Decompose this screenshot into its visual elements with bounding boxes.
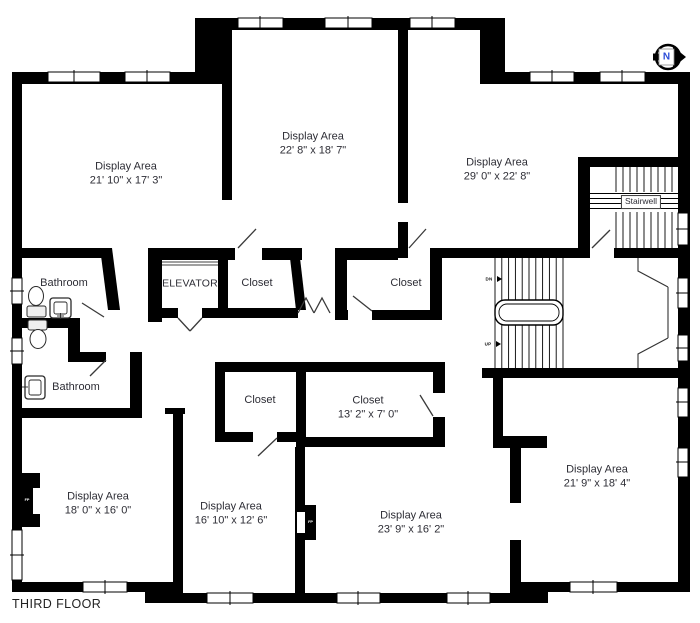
room-dims: 29' 0" x 22' 8"	[464, 170, 530, 184]
fireplace-label-right: FP	[308, 520, 313, 524]
room-name: Display Area	[380, 509, 442, 521]
stairs-down-label: DN	[486, 277, 493, 282]
floor-plan-drawing	[0, 0, 700, 623]
room-dims: 23' 9" x 16' 2"	[378, 523, 444, 537]
fireplace-label-left: FP	[25, 498, 30, 502]
room-dims: 21' 9" x 18' 4"	[564, 477, 630, 491]
room-label-closet-lower-right: Closet 13' 2" x 7' 0"	[338, 394, 398, 422]
room-label-closet-by-elevator: Closet	[241, 277, 272, 291]
room-dims: 18' 0" x 16' 0"	[65, 504, 131, 518]
stairs-up-label: UP	[485, 342, 492, 347]
floor-plan: Display Area 21' 10" x 17' 3" Display Ar…	[0, 0, 700, 623]
floor-title: THIRD FLOOR	[12, 597, 101, 611]
main-staircase	[495, 258, 563, 368]
room-name: Display Area	[95, 160, 157, 172]
north-label: N	[663, 52, 670, 63]
dn-arrow-icon	[497, 276, 502, 282]
room-dims: 13' 2" x 7' 0"	[338, 408, 398, 422]
room-label-closet-middle: Closet	[390, 277, 421, 291]
room-name: Display Area	[282, 130, 344, 142]
room-label-display-bottom-mid: Display Area 16' 10" x 12' 6"	[195, 500, 268, 528]
room-label-display-top-right: Display Area 29' 0" x 22' 8"	[464, 156, 530, 184]
toilet-icon	[30, 330, 46, 349]
room-dims: 22' 8" x 18' 7"	[280, 144, 346, 158]
room-name: Display Area	[566, 463, 628, 475]
room-label-stairwell: Stairwell	[621, 195, 661, 209]
room-label-display-top-left: Display Area 21' 10" x 17' 3"	[90, 160, 163, 188]
room-label-display-bottom-left: Display Area 18' 0" x 16' 0"	[65, 490, 131, 518]
room-label-display-bottom-ctr: Display Area 23' 9" x 16' 2"	[378, 509, 444, 537]
room-name: Display Area	[67, 490, 129, 502]
room-name: Display Area	[466, 156, 528, 168]
up-arrow-icon	[496, 341, 501, 347]
wall-niche-lines	[638, 258, 668, 368]
room-dims: 21' 10" x 17' 3"	[90, 174, 163, 188]
room-label-bathroom-lower: Bathroom	[52, 381, 100, 395]
room-label-bathroom-upper: Bathroom	[40, 277, 88, 291]
elevator-cab-lines	[162, 262, 218, 265]
room-name: Display Area	[200, 500, 262, 512]
room-label-elevator: ELEVATOR	[162, 277, 218, 290]
room-dims: 16' 10" x 12' 6"	[195, 514, 268, 528]
room-label-display-top-middle: Display Area 22' 8" x 18' 7"	[280, 130, 346, 158]
room-name: Closet	[352, 394, 383, 406]
room-label-closet-lower-left: Closet	[244, 394, 275, 408]
room-label-display-right: Display Area 21' 9" x 18' 4"	[564, 463, 630, 491]
